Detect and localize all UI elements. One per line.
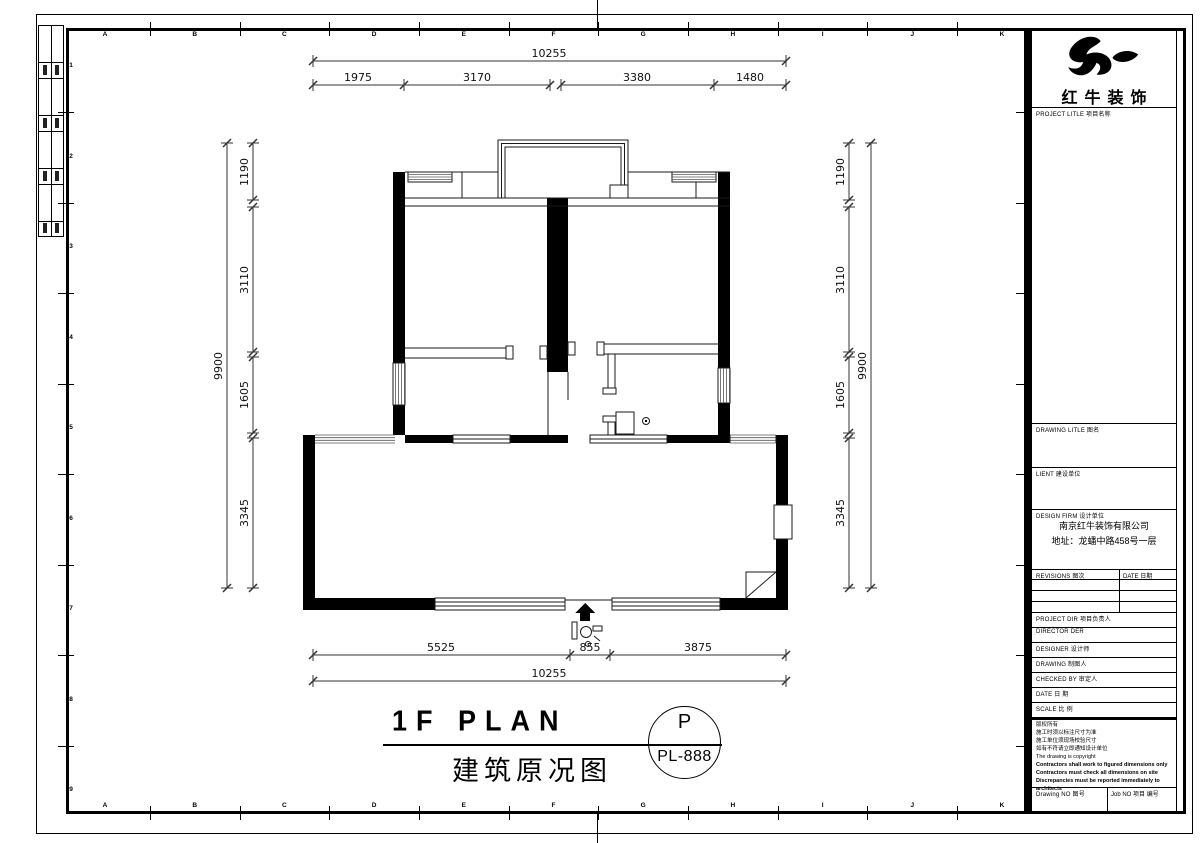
grid-tick — [1016, 293, 1032, 294]
tb-line — [1032, 642, 1176, 643]
grid-tick — [1016, 112, 1032, 113]
drawing-by-label: DRAWING 制图人 — [1036, 659, 1087, 668]
grid-tick — [957, 22, 958, 36]
revisions-label: REVISIONS 图次 — [1036, 571, 1085, 580]
grid-tick — [778, 806, 779, 820]
scale-label: SCALE 比 例 — [1036, 704, 1073, 713]
grid-tick — [58, 565, 74, 566]
drawing-title-label: DRAWING LITLE 图名 — [1036, 425, 1099, 434]
grid-letter: I — [818, 31, 828, 38]
grid-letter: H — [728, 802, 738, 809]
grid-number: 6 — [1021, 515, 1031, 522]
tb-line — [1032, 601, 1176, 602]
grid-letter: K — [997, 802, 1007, 809]
grid-letter: B — [190, 802, 200, 809]
tb-line — [1032, 672, 1176, 673]
stamp-letter: P — [648, 711, 721, 734]
tb-line — [1032, 107, 1176, 108]
copyright-notes: 版权所有 施工时须以标注尺寸为准 施工单位须现场校验尺寸 如有不符请立即通知设计… — [1036, 721, 1174, 793]
grid-tick — [58, 293, 74, 294]
titleblock-strip-line — [1176, 28, 1177, 814]
grid-letter: E — [459, 802, 469, 809]
grid-tick — [509, 806, 510, 820]
grid-letter: G — [638, 31, 648, 38]
brand-name: 红牛装饰 — [1032, 84, 1176, 108]
grid-letter: C — [279, 31, 289, 38]
note-line: 如有不符请立即通知设计单位 — [1036, 745, 1174, 753]
note-line: 施工时须以标注尺寸为准 — [1036, 729, 1174, 737]
grid-tick — [598, 22, 599, 36]
revision-date-label: DATE 日期 — [1123, 571, 1152, 580]
note-line: Contractors shall work to figured dimens… — [1036, 761, 1174, 769]
grid-letter: H — [728, 31, 738, 38]
grid-letter: A — [100, 31, 110, 38]
grid-tick — [1016, 655, 1032, 656]
grid-tick — [329, 22, 330, 36]
tb-line — [1032, 612, 1176, 613]
grid-tick — [58, 474, 74, 475]
grid-tick — [58, 746, 74, 747]
grid-letter: F — [549, 31, 559, 38]
grid-letter: K — [997, 31, 1007, 38]
grid-tick — [419, 806, 420, 820]
drawing-no-label: Drawing NO 图号 — [1036, 789, 1085, 798]
grid-letter: I — [818, 802, 828, 809]
grid-number: 4 — [66, 334, 76, 341]
grid-tick — [1016, 746, 1032, 747]
grid-number: 9 — [66, 786, 76, 793]
grid-tick — [688, 806, 689, 820]
sheet-inner-border — [66, 28, 1186, 814]
tb-line — [1032, 687, 1176, 688]
grid-number: 8 — [1021, 696, 1031, 703]
tb-line — [1032, 569, 1176, 570]
grid-letter: J — [907, 31, 917, 38]
tb-line — [1032, 657, 1176, 658]
grid-number: 6 — [66, 515, 76, 522]
grid-number: 7 — [1021, 605, 1031, 612]
grid-letter: B — [190, 31, 200, 38]
plan-title-cn: 建筑原况图 — [452, 749, 612, 788]
grid-letter: F — [549, 802, 559, 809]
director-label: DIRECTOR DER — [1036, 629, 1084, 635]
project-dir-label: PROJECT DIR 项目负责人 — [1036, 614, 1111, 623]
grid-number: 5 — [1021, 424, 1031, 431]
grid-number: 5 — [66, 424, 76, 431]
tb-line — [1032, 423, 1176, 424]
grid-number: 3 — [1021, 243, 1031, 250]
design-firm-name: 南京红牛装饰有限公司 — [1032, 519, 1176, 532]
grid-letter: D — [369, 31, 379, 38]
grid-number: 3 — [66, 243, 76, 250]
date-label: DATE 日 期 — [1036, 689, 1069, 698]
hongniu-logo-icon — [1054, 32, 1154, 82]
grid-tick — [1016, 565, 1032, 566]
binding-edge-table — [38, 25, 64, 237]
checked-by-label: CHECKED BY 审定人 — [1036, 674, 1097, 683]
grid-tick — [419, 22, 420, 36]
grid-tick — [329, 806, 330, 820]
grid-letter: J — [907, 802, 917, 809]
grid-tick — [240, 22, 241, 36]
grid-tick — [688, 22, 689, 36]
grid-tick — [150, 806, 151, 820]
tb-line — [1032, 627, 1176, 628]
grid-tick — [509, 22, 510, 36]
grid-number: 4 — [1021, 334, 1031, 341]
grid-letter: C — [279, 802, 289, 809]
tb-line — [1032, 509, 1176, 510]
design-firm-address: 地址：龙蟠中路458号一层 — [1032, 534, 1176, 547]
grid-tick — [867, 806, 868, 820]
grid-number: 7 — [66, 605, 76, 612]
grid-letter: E — [459, 31, 469, 38]
tb-line — [1032, 702, 1176, 703]
note-line: 施工单位须现场校验尺寸 — [1036, 737, 1174, 745]
grid-tick — [150, 22, 151, 36]
grid-letter: A — [100, 802, 110, 809]
note-line: 版权所有 — [1036, 721, 1174, 729]
grid-number: 1 — [1021, 62, 1031, 69]
tb-line — [1032, 467, 1176, 468]
grid-tick — [240, 806, 241, 820]
grid-letter: G — [638, 802, 648, 809]
tb-line-thick — [1032, 717, 1176, 720]
grid-tick — [957, 806, 958, 820]
client-label: LIENT 建设单位 — [1036, 469, 1081, 478]
tb-line — [1032, 590, 1176, 591]
grid-tick — [58, 384, 74, 385]
grid-tick — [867, 22, 868, 36]
grid-tick — [598, 806, 599, 820]
grid-number: 2 — [1021, 153, 1031, 160]
note-line: Contractors must check all dimensions on… — [1036, 769, 1174, 777]
project-title-label: PROJECT LITLE 项目名称 — [1036, 109, 1111, 118]
tb-divider — [1119, 569, 1120, 612]
grid-letter: D — [369, 802, 379, 809]
grid-tick — [1016, 384, 1032, 385]
grid-tick — [1016, 474, 1032, 475]
plan-title-en: 1F PLAN — [392, 705, 568, 738]
grid-tick — [58, 655, 74, 656]
note-line: The drawing is copyright — [1036, 753, 1174, 761]
designer-label: DESIGNER 设计师 — [1036, 644, 1089, 653]
grid-tick — [1016, 203, 1032, 204]
drawing-sheet: 10255 1975 3170 3380 1480 9900 1190 3110… — [0, 0, 1200, 843]
grid-number: 8 — [66, 696, 76, 703]
grid-number: 1 — [66, 62, 76, 69]
stamp-number: PL-888 — [648, 748, 721, 766]
grid-number: 2 — [66, 153, 76, 160]
grid-number: 9 — [1021, 786, 1031, 793]
grid-tick — [778, 22, 779, 36]
job-no-label: Job NO 项目 编号 — [1111, 789, 1159, 798]
